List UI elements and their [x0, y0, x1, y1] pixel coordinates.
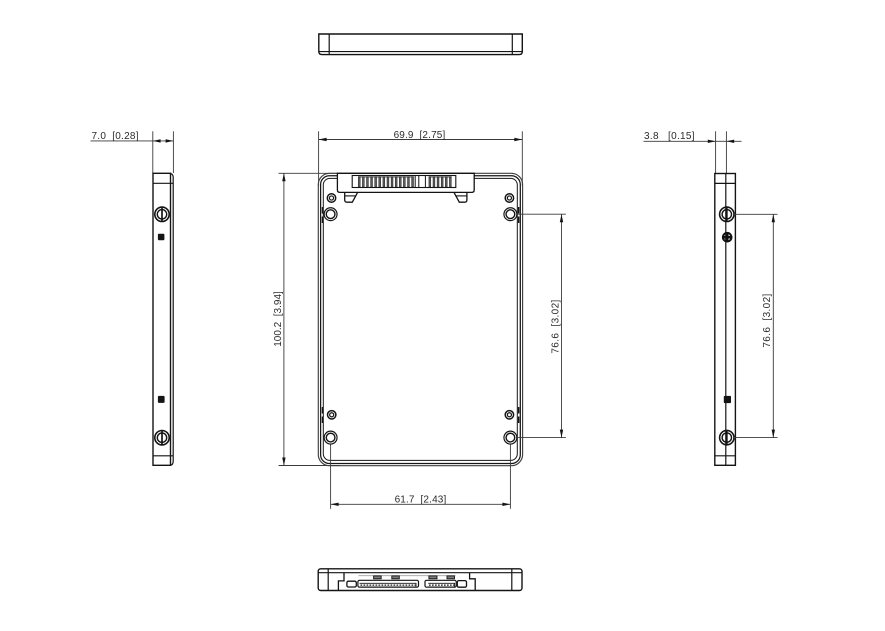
- svg-text:3.8 [0.15]: 3.8 [0.15]: [644, 131, 695, 142]
- svg-text:76.6 [3.02]: 76.6 [3.02]: [550, 299, 561, 353]
- svg-text:7.0 [0.28]: 7.0 [0.28]: [92, 131, 139, 142]
- svg-text:100.2 [3.94]: 100.2 [3.94]: [273, 291, 284, 347]
- svg-text:61.7 [2.43]: 61.7 [2.43]: [395, 494, 447, 505]
- svg-text:69.9 [2.75]: 69.9 [2.75]: [394, 130, 446, 141]
- svg-text:76.6 [3.02]: 76.6 [3.02]: [762, 293, 773, 347]
